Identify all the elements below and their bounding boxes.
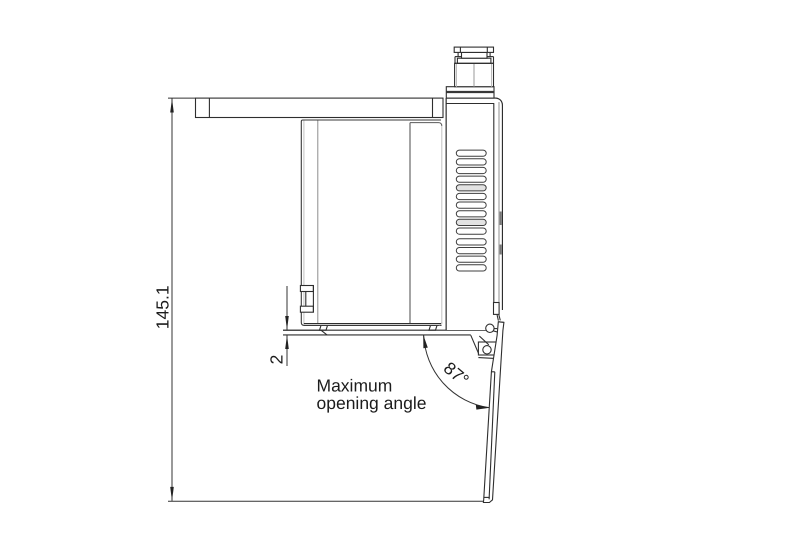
svg-text:145.1: 145.1 bbox=[152, 285, 172, 329]
svg-text:opening angle: opening angle bbox=[317, 393, 427, 413]
svg-text:2: 2 bbox=[267, 355, 287, 365]
